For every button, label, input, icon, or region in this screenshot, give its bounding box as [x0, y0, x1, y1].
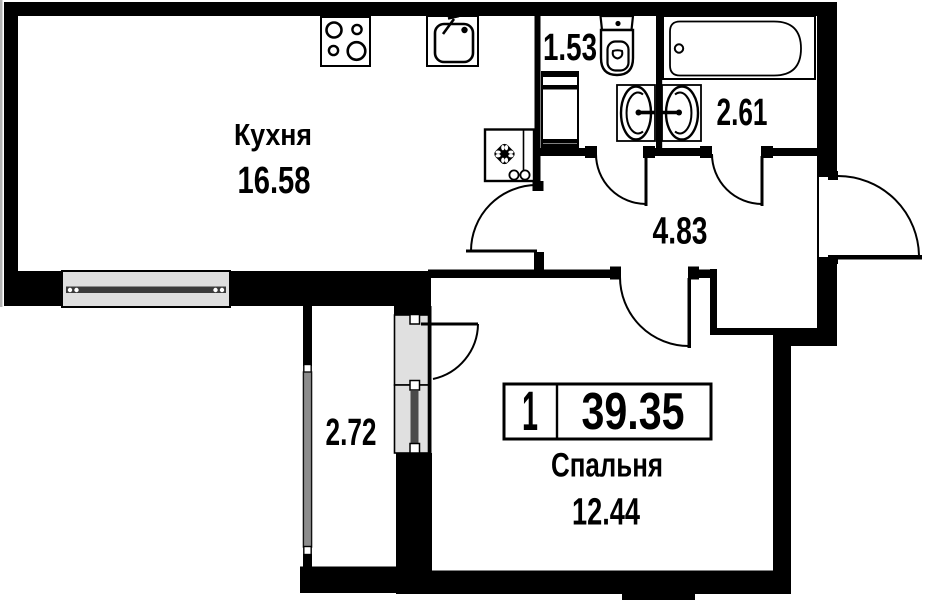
svg-text:2.61: 2.61 — [717, 92, 768, 134]
svg-text:16.58: 16.58 — [238, 160, 311, 202]
svg-text:1: 1 — [522, 379, 538, 442]
svg-text:39.35: 39.35 — [582, 383, 685, 441]
svg-text:12.44: 12.44 — [572, 492, 640, 534]
svg-text:Кухня: Кухня — [234, 117, 312, 152]
svg-text:4.83: 4.83 — [653, 211, 708, 253]
svg-text:1.53: 1.53 — [543, 27, 597, 69]
svg-text:2.72: 2.72 — [326, 412, 377, 454]
svg-text:Спальня: Спальня — [551, 447, 663, 485]
